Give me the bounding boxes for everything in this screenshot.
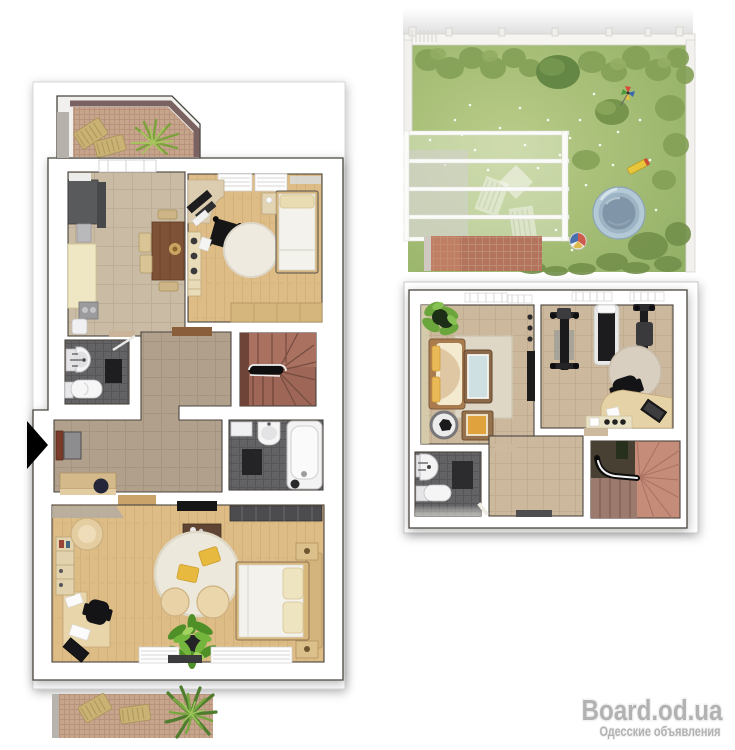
svg-text:Одесские объявления: Одесские объявления: [600, 723, 721, 739]
